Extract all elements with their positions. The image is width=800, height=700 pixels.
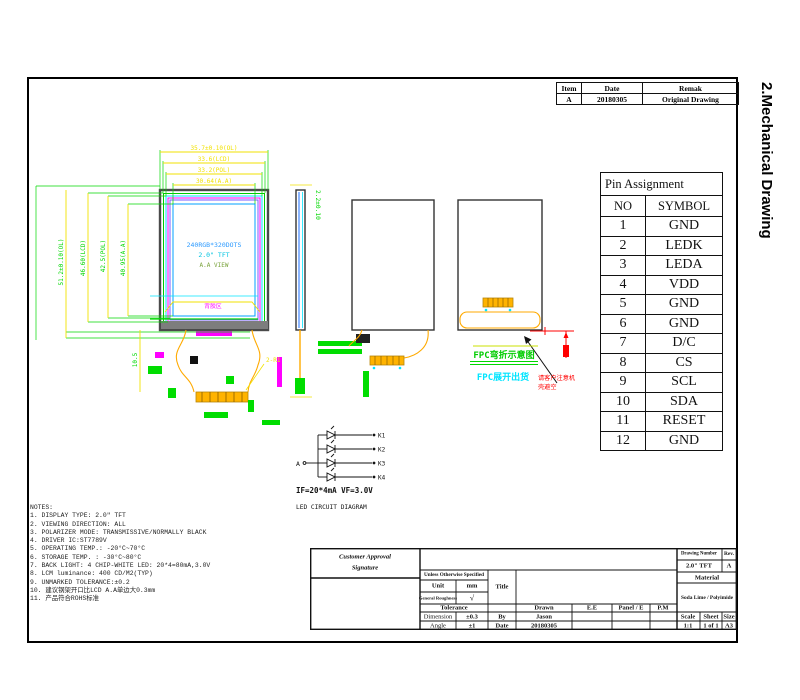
pin-no: 3 <box>601 256 646 276</box>
pin-symbol: GND <box>646 314 723 334</box>
pin-no: 11 <box>601 412 646 432</box>
customer-signature-label: Signature <box>352 565 378 572</box>
pin-row: 10SDA <box>601 392 723 412</box>
pin-no: 1 <box>601 217 646 237</box>
pin-symbol: CS <box>646 353 723 373</box>
drawing-number-value: 2.0" TFT <box>686 563 712 570</box>
pin-row: 7D/C <box>601 334 723 354</box>
note-line: 11. 产品符合ROHS标准 <box>30 595 290 603</box>
notes-block: NOTES: 1. DISPLAY TYPE: 2.0" TFT 2. VIEW… <box>30 504 290 604</box>
pin-symbol: RESET <box>646 412 723 432</box>
led-circuit-caption: LED CIRCUIT DIAGRAM <box>296 504 367 511</box>
drawn-label: Drawn <box>534 605 553 612</box>
mechanical-drawing-sheet: { "side_label": "2.Mechanical Drawing", … <box>0 0 800 700</box>
pm-label: P.M <box>657 605 668 612</box>
note-line: 8. LCM luminance: 400 CD/M2(TYP) <box>30 570 290 578</box>
panel-e-label: Panel / E <box>619 605 644 612</box>
pin-row: 1GND <box>601 217 723 237</box>
sheet-value: 1 of 1 <box>703 622 718 629</box>
pin-col-symbol: SYMBOL <box>646 196 723 217</box>
date-label: Date <box>496 622 509 629</box>
note-line: 3. POLARIZER MODE: TRANSMISSIVE/NORMALLY… <box>30 529 290 537</box>
led-cathode-2: K2 <box>378 447 386 454</box>
pin-symbol: D/C <box>646 334 723 354</box>
pin-row: 12GND <box>601 431 723 451</box>
size-value: A3 <box>725 622 733 629</box>
note-line: 6. STORAGE TEMP. : -30°C~80°C <box>30 554 290 562</box>
by-label: By <box>498 613 506 620</box>
dim-pol-height: 42.5(POL) <box>100 240 107 273</box>
fpc-flat-note: FPC展开出货 <box>477 371 529 383</box>
dimension-label: Dimension <box>424 613 453 620</box>
size-label: Size <box>723 613 734 620</box>
date-value: 20180305 <box>531 622 557 629</box>
scale-value: 1:1 <box>684 622 693 629</box>
fpc-bend-note: FPC弯折示意图 <box>473 349 534 361</box>
pin-assignment-table: Pin Assignment NO SYMBOL 1GND 2LEDK 3LED… <box>600 172 723 451</box>
pin-symbol: GND <box>646 431 723 451</box>
revision-header-row: Item Date Remak <box>557 83 739 94</box>
title-block: Customer Approval Signature Unless Other… <box>310 548 737 630</box>
note-line: 9. UNMARKED TOLERANCE:±0.2 <box>30 579 290 587</box>
unless-otherwise-label: Unless Otherwise Specified <box>424 572 484 578</box>
revision-header-remark: Remak <box>643 83 739 94</box>
pin-symbol: SCL <box>646 373 723 393</box>
dim-aa-height: 40.95(A.A) <box>120 240 127 276</box>
tolerance-label: Tolerance <box>440 605 467 612</box>
roughness-symbol-icon: √ <box>470 594 474 603</box>
dim-aa-width: 30.64(A.A) <box>196 178 232 185</box>
material-value: Soda Lime / Polyimide <box>681 595 733 601</box>
pin-symbol: LEDA <box>646 256 723 276</box>
housing-warning-line2: 壳避空 <box>538 383 557 391</box>
ee-label: E.E <box>587 605 597 612</box>
dim-fpc-length: 10.5 <box>132 352 139 367</box>
revision-item: A <box>557 94 582 105</box>
pin-symbol: GND <box>646 295 723 315</box>
led-cathode-1: K1 <box>378 433 386 440</box>
title-label: Title <box>496 584 509 591</box>
pin-table-title: Pin Assignment <box>601 173 723 196</box>
pin-row: 6GND <box>601 314 723 334</box>
dimension-tolerance-value: ±0.3 <box>466 613 478 620</box>
rev-value: A <box>727 563 732 570</box>
pin-no: 9 <box>601 373 646 393</box>
panel-resolution-label: 240RGB*320DOTS <box>187 241 242 249</box>
fpc-annotations: FPC弯折示意图 FPC展开出货 请客户注意机 壳避空 <box>470 346 576 391</box>
pin-symbol: SDA <box>646 392 723 412</box>
dim-outline-width: 35.7±0.10(OL) <box>191 145 238 152</box>
note-line: 2. VIEWING DIRECTION: ALL <box>30 521 290 529</box>
pin-no: 8 <box>601 353 646 373</box>
dim-thickness: 2.2±0.10 <box>314 190 321 220</box>
unfolded-view <box>318 200 434 397</box>
pin-row: 5GND <box>601 295 723 315</box>
adhesive-area-label: 背胶区 <box>204 302 222 310</box>
note-line: 5. OPERATING TEMP.: -20°C~70°C <box>30 545 290 553</box>
pin-row: 2LEDK <box>601 236 723 256</box>
revision-date: 20180305 <box>582 94 643 105</box>
pin-no: 7 <box>601 334 646 354</box>
note-line: 7. BACK LIGHT: 4 CHIP-WHITE LED: 20*4=80… <box>30 562 290 570</box>
pin-row: 3LEDA <box>601 256 723 276</box>
led-circuit: A K1 K2 K3 K4 IF=20*4mA VF=3.0V LED CIRC… <box>296 426 386 511</box>
dim-corner-radius: 2-R1 <box>266 357 281 364</box>
dim-lcd-width: 33.6(LCD) <box>198 156 231 163</box>
pin-row: 11RESET <box>601 412 723 432</box>
revision-table: Item Date Remak A 20180305 Original Draw… <box>556 82 739 105</box>
panel-area-label: A.A VIEW <box>200 262 229 269</box>
pin-no: 5 <box>601 295 646 315</box>
angle-tolerance-value: ±1 <box>469 622 476 629</box>
drawing-number-label: Drawing Number <box>681 552 717 557</box>
by-value: Jason <box>536 613 552 620</box>
revision-header-item: Item <box>557 83 582 94</box>
pin-no: 12 <box>601 431 646 451</box>
pin-no: 10 <box>601 392 646 412</box>
pin-no: 6 <box>601 314 646 334</box>
pin-no: 2 <box>601 236 646 256</box>
note-line: 1. DISPLAY TYPE: 2.0" TFT <box>30 512 290 520</box>
pin-no: 4 <box>601 275 646 295</box>
side-view: 2.2±0.10 <box>290 185 321 397</box>
revision-remark: Original Drawing <box>643 94 739 105</box>
pin-symbol: VDD <box>646 275 723 295</box>
pin-row: 8CS <box>601 353 723 373</box>
panel-size-label: 2.0" TFT <box>198 251 229 259</box>
led-spec-text: IF=20*4mA VF=3.0V <box>296 486 373 495</box>
customer-approval-label: Customer Approval <box>339 554 391 561</box>
fpc-front: 2-R1 <box>148 330 282 425</box>
rev-label: Rev. <box>724 551 734 557</box>
dim-lcd-height: 46.60(LCD) <box>80 240 87 276</box>
revision-header-date: Date <box>582 83 643 94</box>
angle-label: Angle <box>430 622 446 629</box>
pin-col-no: NO <box>601 196 646 217</box>
dim-pol-width: 33.2(POL) <box>198 167 231 174</box>
pin-symbol: GND <box>646 217 723 237</box>
chapter-label: 2.Mechanical Drawing <box>758 82 775 239</box>
led-cathode-4: K4 <box>378 475 386 482</box>
pin-symbol: LEDK <box>646 236 723 256</box>
housing-warning-line1: 请客户注意机 <box>538 374 576 382</box>
scale-label: Scale <box>681 613 695 620</box>
sheet-label: Sheet <box>703 613 718 620</box>
led-anode-label: A <box>296 460 300 468</box>
front-view: 240RGB*320DOTS 2.0" TFT A.A VIEW 背胶区 <box>150 190 268 336</box>
dim-outline-height: 51.2±0.10(OL) <box>58 239 65 286</box>
unit-value: mm <box>467 583 478 590</box>
revision-value-row: A 20180305 Original Drawing <box>557 94 739 105</box>
unit-label: Unit <box>432 583 444 590</box>
led-cathode-3: K3 <box>378 461 386 468</box>
roughness-label: General Roughness <box>419 596 457 601</box>
pin-row: 4VDD <box>601 275 723 295</box>
material-label: Material <box>695 574 719 581</box>
notes-title: NOTES: <box>30 504 290 512</box>
pin-row: 9SCL <box>601 373 723 393</box>
